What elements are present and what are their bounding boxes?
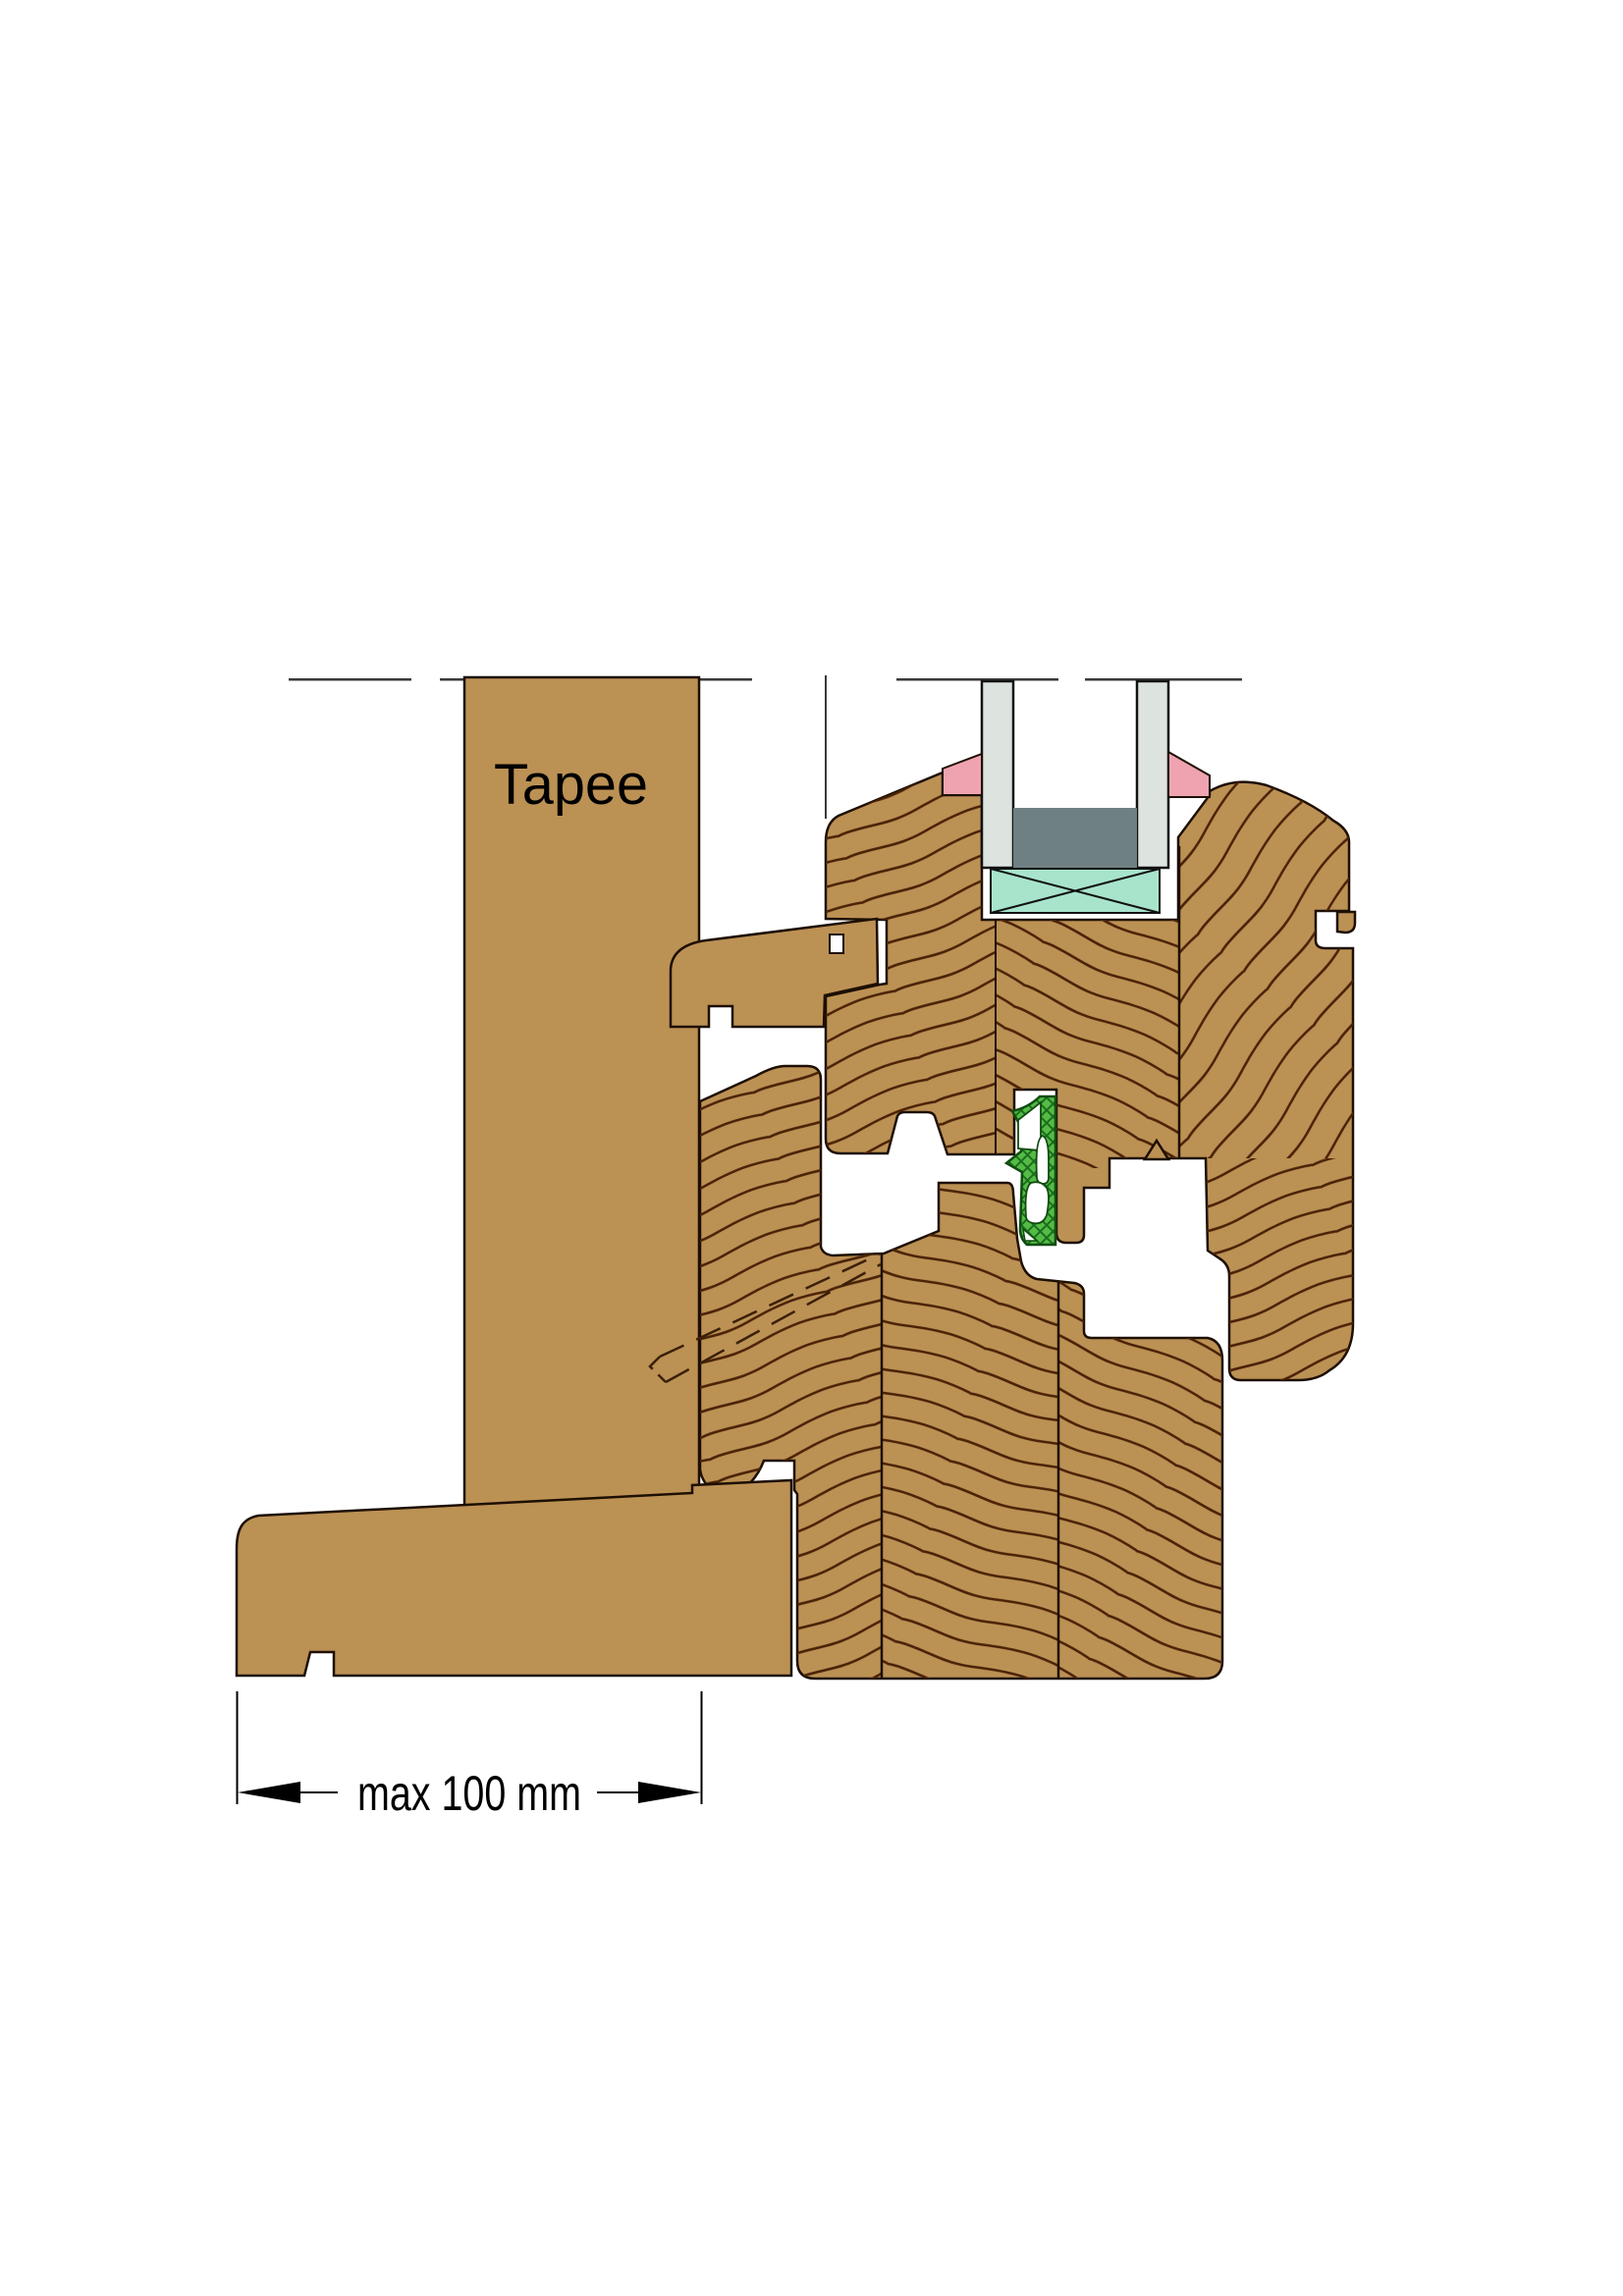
svg-text:max 100 mm: max 100 mm: [357, 1766, 581, 1821]
svg-text:Tapee: Tapee: [494, 753, 648, 817]
